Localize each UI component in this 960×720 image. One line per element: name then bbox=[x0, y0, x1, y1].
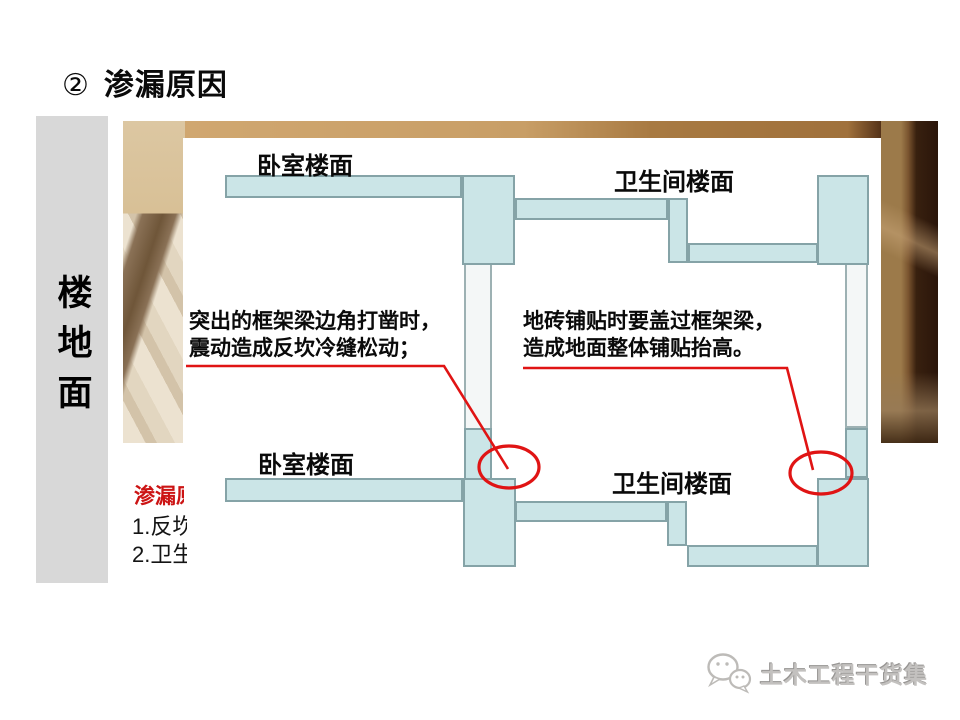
photo-top-strip bbox=[185, 121, 938, 138]
upper-bathroom-step bbox=[668, 198, 688, 263]
annotation-left-line2: 震动造成反坎冷缝松动； bbox=[189, 335, 441, 362]
sidebar-label: 楼地面 bbox=[47, 274, 98, 424]
page-title: ②渗漏原因 bbox=[62, 60, 228, 104]
wall-right-lower bbox=[845, 428, 868, 478]
upper-bathroom-label: 卫生间楼面 bbox=[614, 162, 734, 197]
lower-right-beam bbox=[817, 478, 869, 567]
leak-notes-item-2: 2.卫生 bbox=[132, 537, 187, 564]
wall-right-upper bbox=[845, 263, 868, 428]
lower-bathroom-label: 卫生间楼面 bbox=[612, 464, 732, 499]
title-bullet: ② bbox=[62, 69, 90, 102]
wall-middle-lower bbox=[464, 428, 492, 480]
upper-middle-beam bbox=[462, 175, 515, 265]
lower-bathroom-slab bbox=[515, 501, 667, 522]
photo-right-strip bbox=[881, 121, 938, 443]
section-sidebar: 楼地面 bbox=[36, 116, 108, 583]
wechat-icon bbox=[706, 652, 752, 694]
upper-bathroom-sunken-slab bbox=[688, 243, 818, 263]
wall-middle-upper bbox=[464, 263, 492, 430]
photo-left-strip bbox=[123, 121, 185, 443]
lower-bedroom-label: 卧室楼面 bbox=[258, 445, 354, 480]
upper-bedroom-label: 卧室楼面 bbox=[257, 146, 353, 181]
lower-bedroom-slab bbox=[225, 478, 463, 502]
annotation-left-line1: 突出的框架梁边角打凿时， bbox=[189, 308, 441, 335]
leak-notes-item-1: 1.反坎 bbox=[132, 509, 187, 536]
lower-bathroom-sunken-slab bbox=[687, 545, 818, 567]
upper-right-beam bbox=[817, 175, 869, 265]
watermark: 土木工程干货集 bbox=[706, 652, 928, 694]
lower-middle-beam bbox=[463, 478, 516, 567]
title-text: 渗漏原因 bbox=[104, 69, 228, 102]
annotation-right-line1: 地砖铺贴时要盖过框架梁， bbox=[523, 308, 775, 335]
watermark-text: 土木工程干货集 bbox=[760, 656, 928, 690]
upper-bathroom-slab bbox=[515, 198, 668, 220]
slide: ②渗漏原因 楼地面 渗漏原 1.反坎 2.卫生 卧室楼面 卫生间楼面 卧室楼面 … bbox=[0, 0, 960, 720]
lower-bathroom-step bbox=[667, 501, 687, 546]
annotation-right-line2: 造成地面整体铺贴抬高。 bbox=[523, 335, 775, 362]
annotation-left: 突出的框架梁边角打凿时， 震动造成反坎冷缝松动； bbox=[189, 308, 441, 362]
leak-notes-heading: 渗漏原 bbox=[134, 480, 184, 507]
annotation-right: 地砖铺贴时要盖过框架梁， 造成地面整体铺贴抬高。 bbox=[523, 308, 775, 362]
